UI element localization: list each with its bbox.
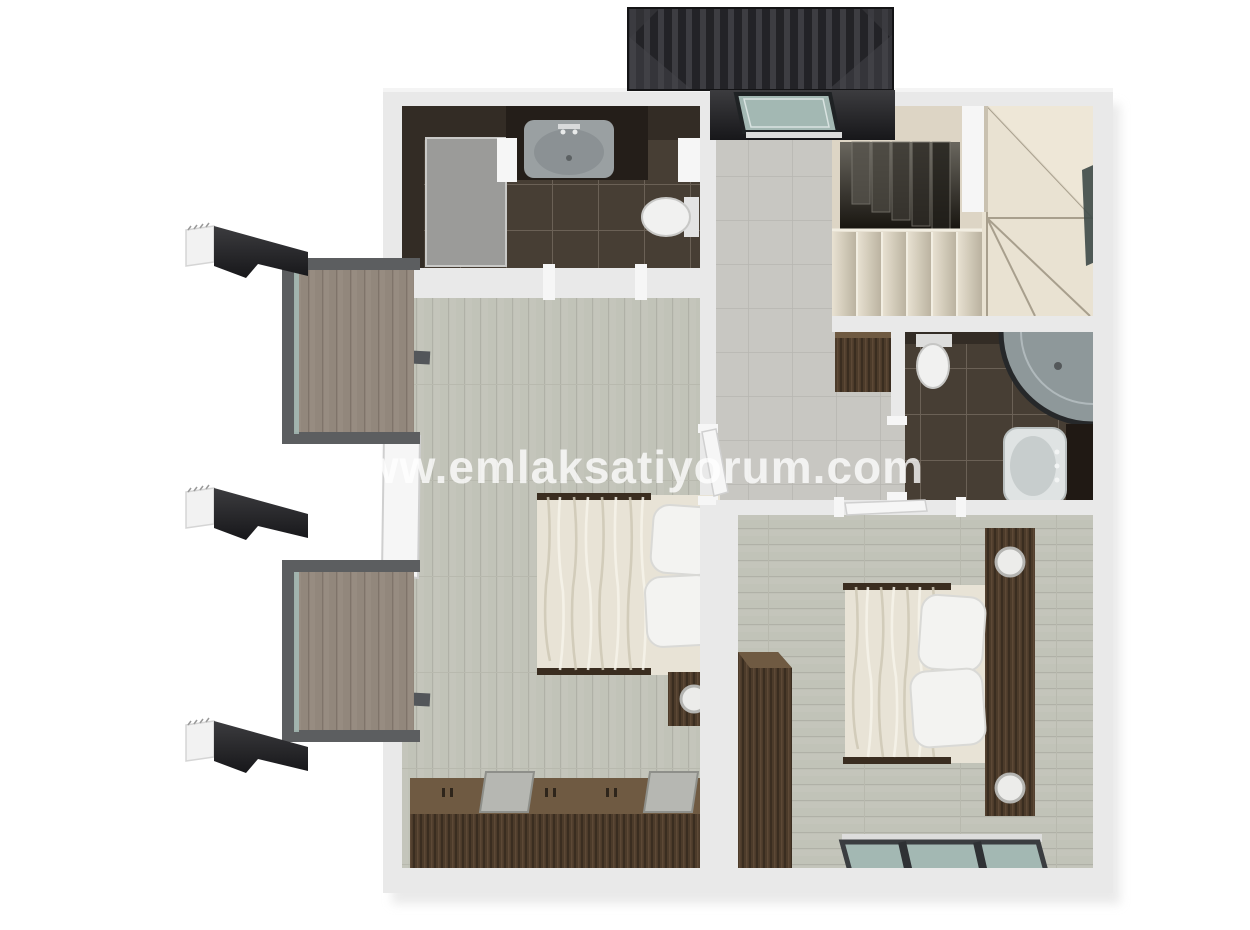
bedroom-right bbox=[716, 515, 1093, 886]
hall-cabinet bbox=[835, 330, 893, 392]
balcony-lower bbox=[282, 560, 420, 742]
entry-porch-roof bbox=[710, 90, 895, 140]
toilet bbox=[642, 197, 699, 237]
shower-tray bbox=[426, 138, 506, 266]
stair-newel-wall bbox=[962, 106, 984, 212]
balcony-upper bbox=[282, 258, 420, 444]
watermark-text: www.emlaksatiyorum.com bbox=[325, 441, 924, 493]
roof-block bbox=[628, 8, 893, 90]
bed-left bbox=[537, 493, 720, 675]
wardrobe-left bbox=[410, 772, 712, 868]
stair-treads bbox=[832, 230, 982, 316]
ensuite-sink bbox=[1004, 424, 1093, 510]
wardrobe-right bbox=[738, 652, 792, 868]
bedroom-left bbox=[402, 298, 720, 868]
bathroom-main bbox=[402, 106, 700, 268]
headboard-right bbox=[985, 528, 1035, 816]
floor-plan-render: www.emlaksatiyorum.com bbox=[0, 0, 1250, 930]
sink bbox=[506, 106, 648, 180]
bed-right bbox=[843, 583, 987, 764]
stair-winder bbox=[982, 106, 1093, 316]
